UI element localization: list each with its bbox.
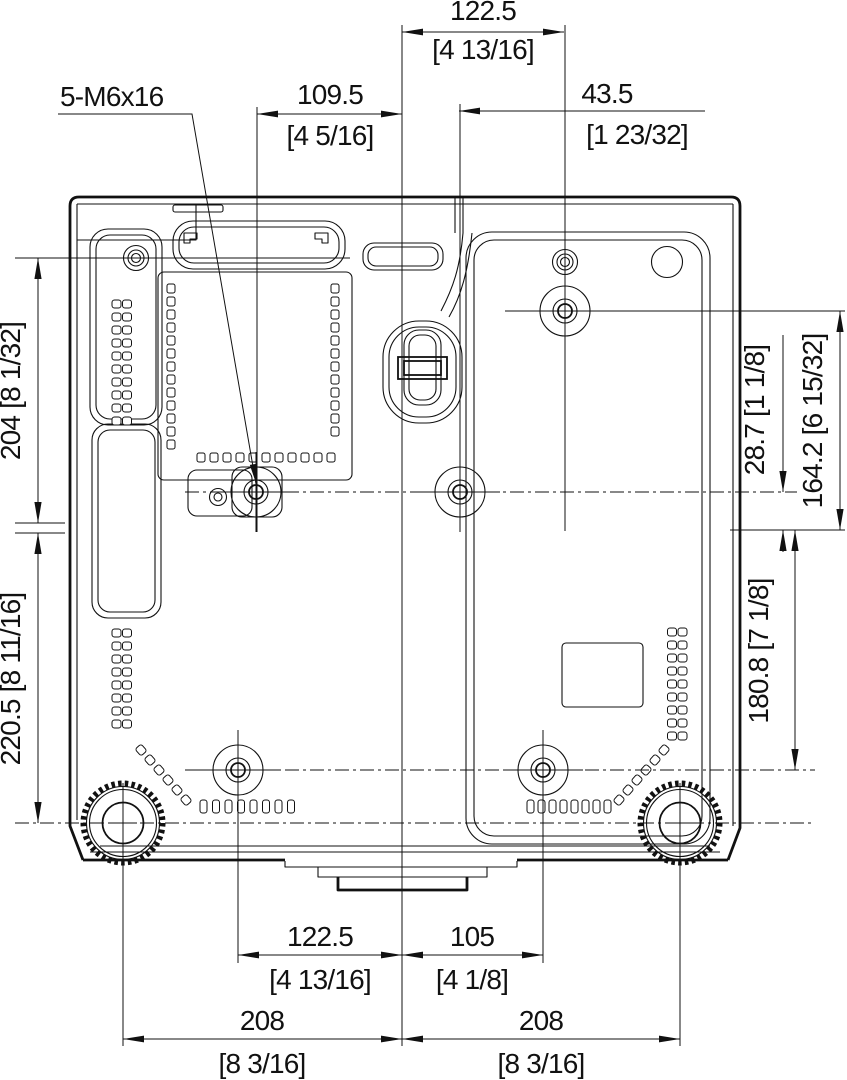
dim-label: 208 (240, 1005, 285, 1036)
dim-label: 208 (519, 1005, 564, 1036)
dim-label: 164.2 [6 15/32] (797, 334, 828, 509)
vent-slots-bottom-right-row (527, 800, 611, 813)
dim-bottom-left-hole: 122.5 [4 13/16] (238, 921, 402, 995)
vent-slots-right-column (668, 628, 688, 740)
projector-bottom-view-drawing: 122.5 [4 13/16] 109.5 [4 5/16] 43.5 [1 2… (0, 0, 847, 1080)
corner-hole (652, 247, 683, 278)
front-foot-protrusion (285, 861, 517, 890)
dim-label: [4 1/8] (436, 964, 508, 995)
vent-slots-left-lower (112, 629, 132, 728)
dim-bottom-right-hole: 105 [4 1/8] (402, 921, 543, 995)
dim-label: [8 3/16] (218, 1048, 305, 1079)
dim-left-lower: 220.5 [8 11/16] (0, 533, 42, 823)
top-slot-recess (363, 243, 443, 270)
dim-top-left: 109.5 [4 5/16] (257, 79, 402, 151)
dim-label: [1 23/32] (586, 119, 688, 150)
carry-handle-recess (173, 205, 345, 269)
centerlines (15, 25, 845, 1046)
filter-cover-latch (383, 233, 472, 423)
dim-label: 28.7 [1 1/8] (739, 345, 770, 476)
dim-label: 122.5 (287, 921, 353, 952)
lamp-panel-nubs-left (167, 284, 175, 449)
mount-hole-bottom-right (503, 730, 583, 810)
vent-slots-right-diagonal (613, 744, 670, 806)
dim-left-upper: 204 [8 1/32] (0, 258, 42, 523)
screw-spec-label: 5-M6x16 (60, 81, 164, 112)
mount-hole-center (420, 452, 500, 532)
left-recess-lower (92, 424, 161, 618)
projector-body-outline (70, 197, 740, 860)
dim-label: 105 (450, 921, 495, 952)
dim-label: [4 13/16] (269, 964, 371, 995)
vent-slots-left-upper (112, 300, 132, 425)
dim-bottom-left-foot: 208 [8 3/16] (123, 1005, 402, 1079)
dim-label: 109.5 (297, 79, 363, 110)
dim-label: 122.5 (450, 0, 516, 26)
dim-label: 43.5 (581, 78, 633, 109)
dim-label: [4 5/16] (286, 120, 373, 151)
mount-hole-bottom-left (198, 730, 278, 810)
dim-label: [8 3/16] (497, 1048, 584, 1079)
dim-right-upper: 164.2 [6 15/32] (797, 311, 844, 530)
lamp-panel-nubs-right (331, 284, 339, 436)
dim-right-offset: 28.7 [1 1/8] (739, 335, 787, 552)
dim-right-lower: 180.8 [7 1/8] (743, 530, 799, 770)
dim-label: 180.8 [7 1/8] (743, 578, 774, 723)
dim-label: [4 13/16] (432, 34, 534, 65)
dim-label: 220.5 [8 11/16] (0, 593, 26, 766)
dim-top-center: 122.5 [4 13/16] (402, 0, 564, 65)
mount-hole-top-right (525, 271, 605, 351)
dim-top-right: 43.5 [1 23/32] (459, 78, 705, 150)
dim-bottom-right-foot: 208 [8 3/16] (402, 1005, 680, 1079)
bottom-cover-panel (466, 232, 710, 844)
dimension-drawing-svg: 122.5 [4 13/16] 109.5 [4 5/16] 43.5 [1 2… (0, 0, 847, 1080)
vent-slots-bottom-left-row (200, 800, 295, 813)
lamp-panel-nubs-bottom (197, 453, 335, 462)
dim-label: 204 [8 1/32] (0, 322, 26, 460)
